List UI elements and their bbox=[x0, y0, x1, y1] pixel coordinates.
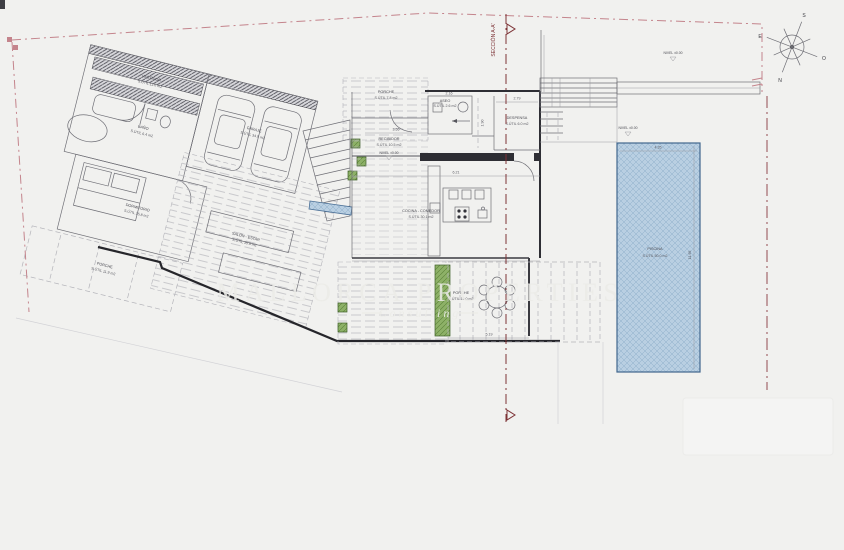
compass-rose: S N O E bbox=[758, 13, 826, 84]
dim-despensa: 2.79 bbox=[514, 97, 521, 101]
floor-plan-sheet: VESTIDOR S.ÚTIL 11.0 m2 BAÑO S.ÚTIL 6.4 … bbox=[0, 0, 844, 550]
despensa-label: DESPENSA bbox=[507, 116, 528, 120]
bath-divider bbox=[140, 104, 145, 125]
dim-porche: 5.19 bbox=[486, 333, 493, 337]
piscina-area: S.ÚTIL 50.0 m2 bbox=[642, 253, 667, 258]
dim-salon-comedor: 6.21 bbox=[453, 171, 460, 175]
interior-wall-band bbox=[420, 153, 514, 161]
bed-blanket-line bbox=[78, 188, 140, 203]
dim-aseo: 2.16 bbox=[446, 92, 453, 96]
nivel-terrace-label: NIVEL ±0.00 bbox=[663, 51, 682, 55]
section-label: SECCIÓN A-A' bbox=[490, 23, 497, 56]
boundary-corner-marker-1 bbox=[7, 37, 12, 42]
piscina-label: PISCINA bbox=[647, 247, 663, 251]
lower-terrace-line bbox=[16, 318, 342, 392]
cooktop bbox=[455, 207, 469, 221]
aseo-label: ASEO bbox=[440, 99, 451, 103]
porche-entrada-area: S.ÚTIL 7.8 m2 bbox=[374, 95, 397, 100]
section-marker-top bbox=[507, 24, 515, 34]
nivel-pool-marker bbox=[625, 132, 631, 136]
cocina-area: S.ÚTIL 30.1 m2 bbox=[408, 214, 433, 219]
bar-stool-1 bbox=[449, 190, 458, 199]
aseo-area: S.ÚTIL 2.6 m2 bbox=[433, 103, 456, 108]
nivel-entry-label: NIVEL ±0.00 bbox=[379, 151, 398, 155]
pillow-2 bbox=[111, 173, 140, 193]
scan-corner-mark bbox=[0, 0, 5, 9]
section-marker-bottom bbox=[507, 410, 515, 420]
basin bbox=[146, 108, 158, 120]
door-jamb bbox=[534, 153, 540, 161]
pillow-1 bbox=[83, 166, 112, 186]
dim-pool-length: 11.95 bbox=[688, 251, 692, 260]
aseo-arrowhead bbox=[452, 119, 457, 123]
recibidor-area: S.ÚTIL 10.5 m2 bbox=[376, 142, 401, 147]
bar-stool-2 bbox=[462, 190, 471, 199]
nivel-pool-label: NIVEL ±0.00 bbox=[618, 126, 637, 130]
dim-pasillo: 1.90 bbox=[481, 120, 485, 127]
watermark-subtitle: Consulting bbox=[379, 306, 462, 320]
ghost-stamp-box bbox=[683, 398, 833, 455]
entry-corridor-deck bbox=[352, 140, 428, 255]
bar-stool-3 bbox=[475, 190, 484, 199]
toilet bbox=[159, 115, 172, 129]
terrace-steps bbox=[540, 30, 760, 140]
nivel-terrace-marker bbox=[670, 57, 676, 61]
deck-planter-2 bbox=[338, 323, 347, 332]
kitchen-door-arc bbox=[514, 161, 534, 181]
boundary-corner-marker-2 bbox=[13, 45, 18, 50]
compass-s: S bbox=[802, 13, 806, 19]
compass-o: O bbox=[822, 56, 826, 62]
island-sink bbox=[478, 207, 487, 218]
recibidor-label: RECIBIDOR bbox=[378, 137, 399, 141]
dim-pool-width: 4.35 bbox=[655, 146, 662, 150]
watermark-title: MALLORCA PROPERTIES bbox=[216, 278, 623, 307]
aseo-wc bbox=[458, 102, 468, 112]
dim-recibidor: 3.55 bbox=[393, 128, 400, 132]
floor-plan-drawing: VESTIDOR S.ÚTIL 11.0 m2 BAÑO S.ÚTIL 6.4 … bbox=[0, 0, 844, 550]
despensa-area: S.ÚTIL 6.0 m2 bbox=[505, 121, 528, 126]
compass-n: N bbox=[778, 78, 782, 84]
entry-porch-deck bbox=[343, 78, 428, 140]
cocina-label: COCINA - COMEDOR bbox=[402, 209, 440, 213]
porche-entrada-label: PORCHE bbox=[378, 90, 395, 94]
